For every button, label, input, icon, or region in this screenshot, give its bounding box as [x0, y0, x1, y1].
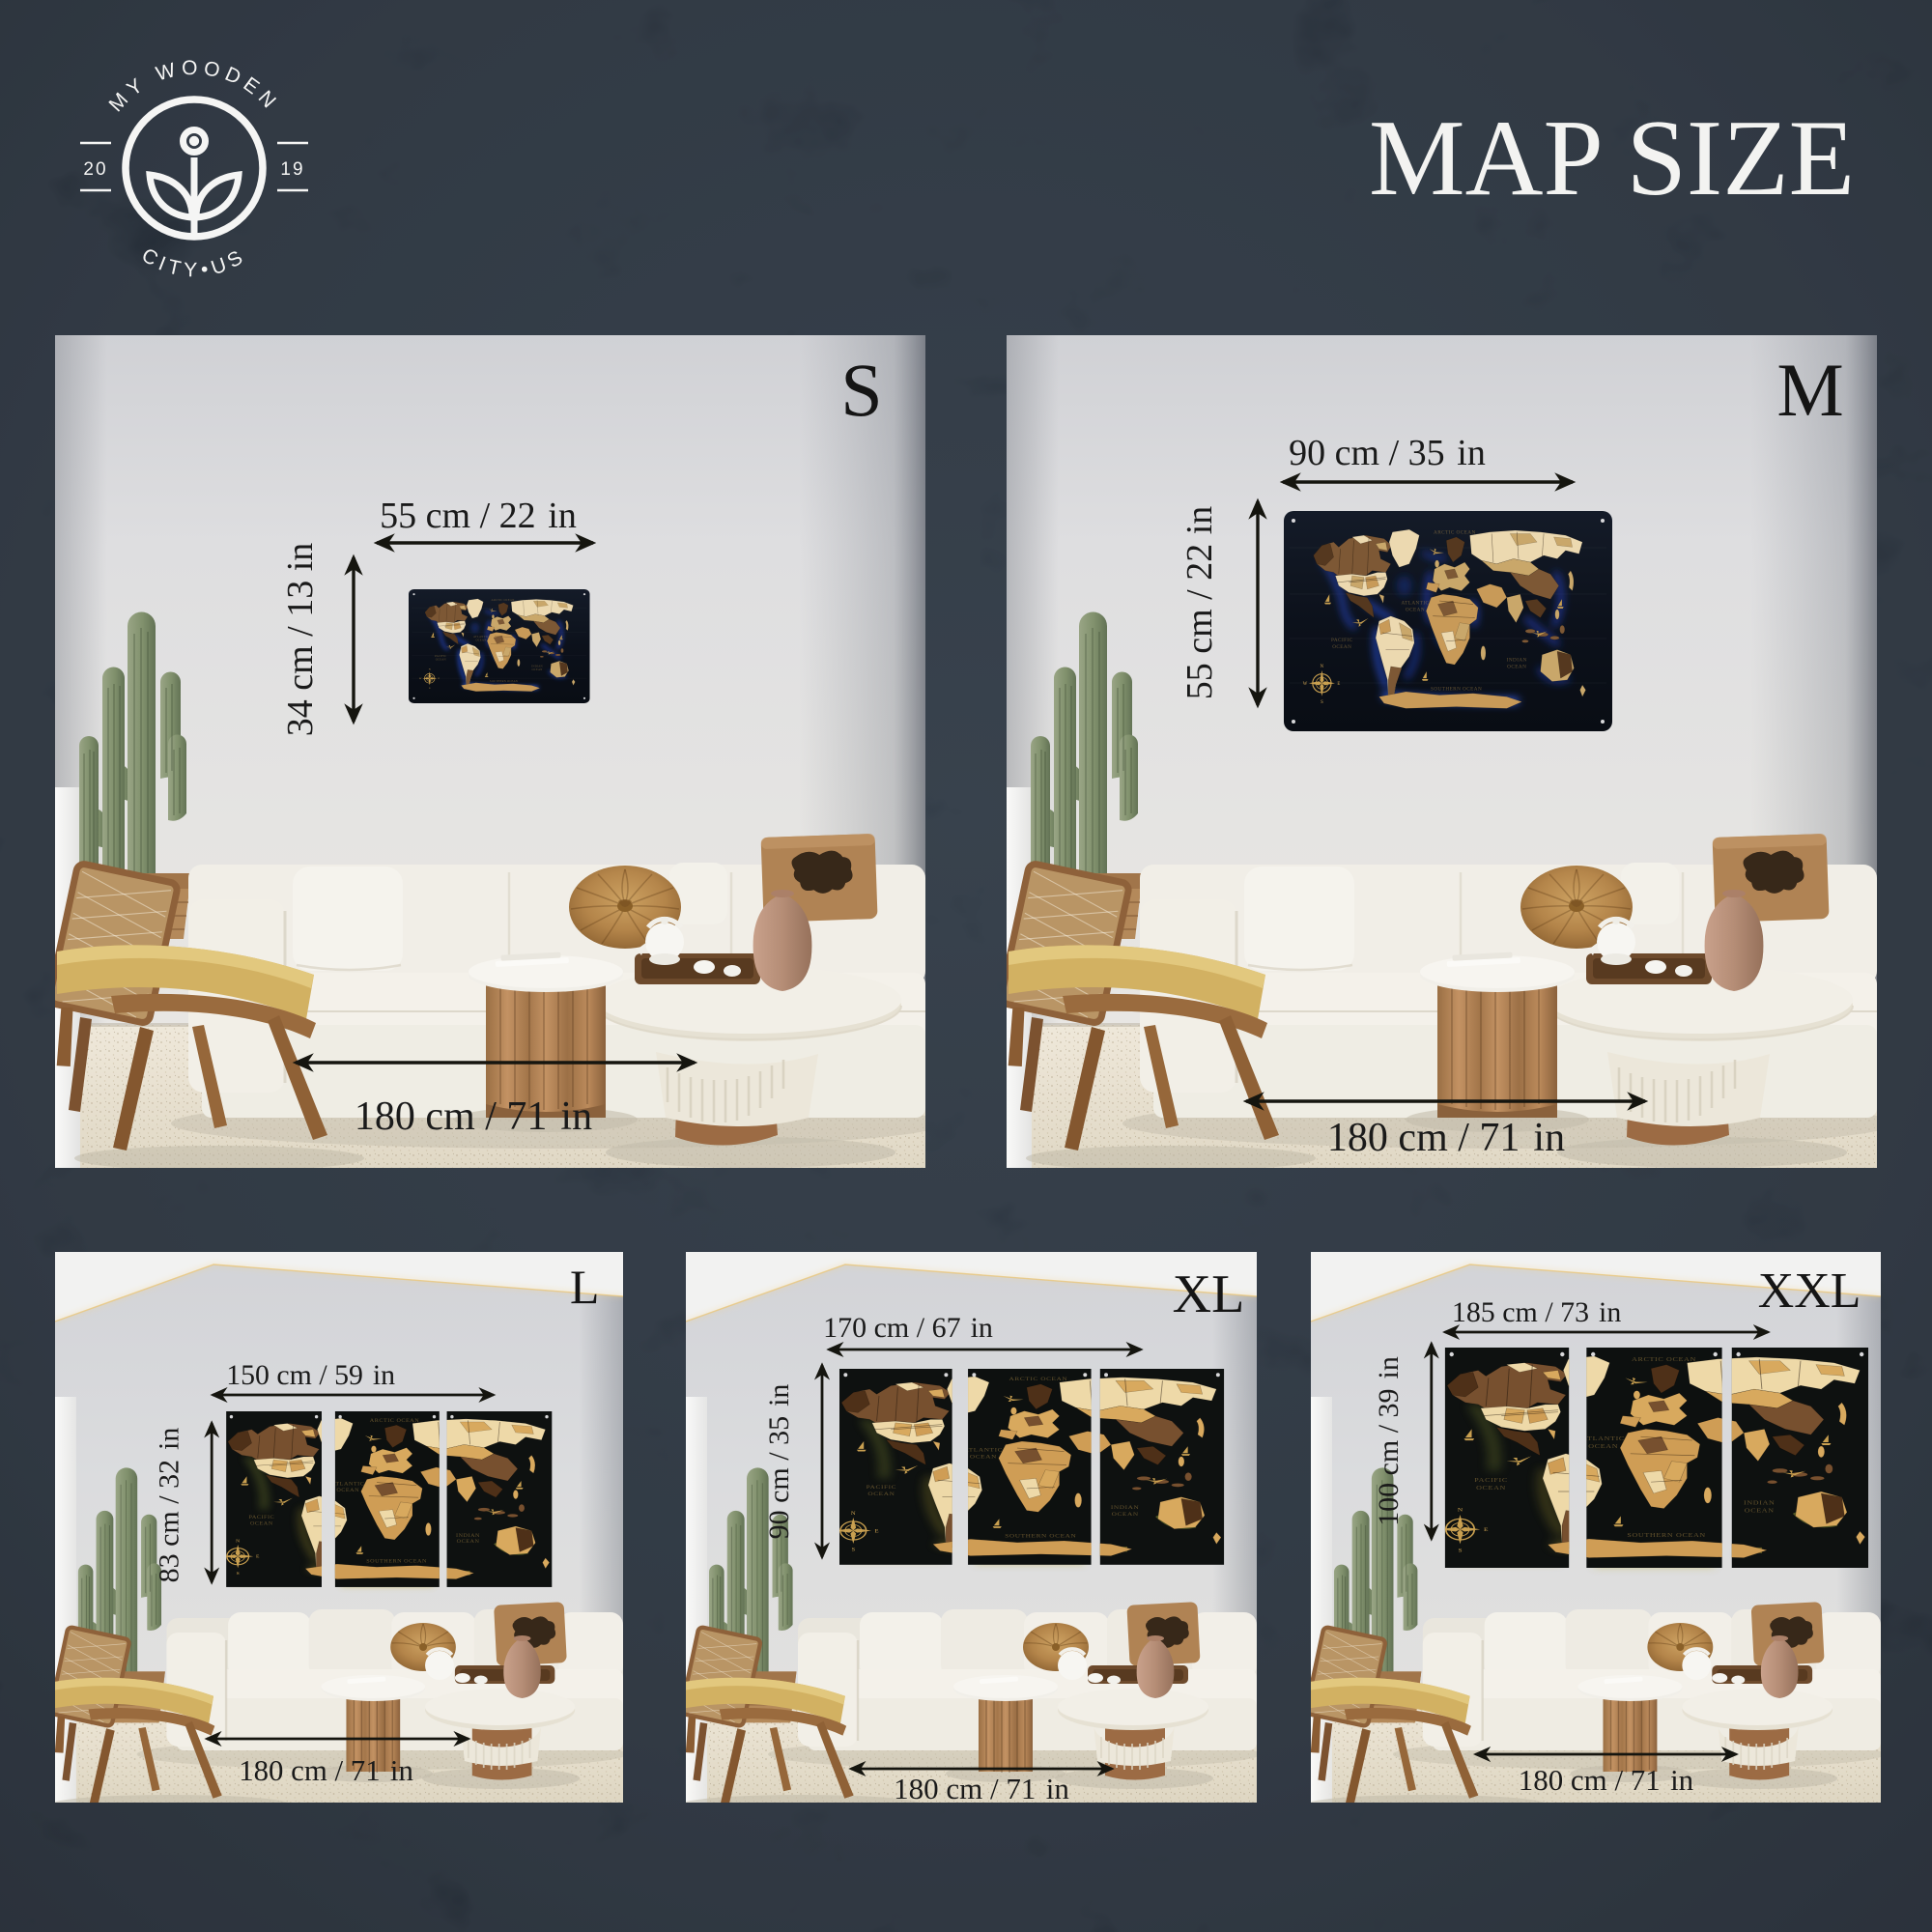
svg-text:ARCTIC OCEAN: ARCTIC OCEAN	[1434, 529, 1476, 535]
svg-text:S: S	[851, 1548, 855, 1552]
svg-text:ATLANTIC: ATLANTIC	[964, 1447, 1003, 1453]
svg-text:90 cm / 35 in: 90 cm / 35 in	[763, 1384, 795, 1540]
svg-text:OCEAN: OCEAN	[1507, 665, 1526, 670]
svg-text:OCEAN: OCEAN	[475, 639, 486, 642]
svg-text:ATLANTIC: ATLANTIC	[473, 636, 489, 639]
svg-text:OCEAN: OCEAN	[1745, 1508, 1775, 1515]
svg-text:OCEAN: OCEAN	[970, 1454, 997, 1460]
svg-text:SOUTHERN OCEAN: SOUTHERN OCEAN	[1005, 1533, 1076, 1539]
svg-text:OCEAN: OCEAN	[867, 1492, 895, 1497]
svg-text:83 cm / 32 in: 83 cm / 32 in	[153, 1428, 185, 1583]
svg-text:PACIFIC: PACIFIC	[435, 655, 446, 658]
svg-text:55 cm / 22 in: 55 cm / 22 in	[1179, 506, 1220, 700]
svg-text:MY WOODEN: MY WOODEN	[105, 57, 284, 116]
svg-text:SOUTHERN OCEAN: SOUTHERN OCEAN	[366, 1559, 427, 1564]
svg-text:W: W	[1303, 682, 1308, 687]
svg-text:150 cm / 59 in: 150 cm / 59 in	[226, 1359, 395, 1391]
svg-text:M: M	[1776, 348, 1843, 432]
svg-text:90 cm / 35 in: 90 cm / 35 in	[1289, 433, 1486, 473]
svg-text:S: S	[1321, 700, 1323, 705]
svg-text:OCEAN: OCEAN	[1332, 644, 1351, 650]
svg-text:34 cm / 13 in: 34 cm / 13 in	[280, 543, 321, 737]
svg-text:180 cm / 71 in: 180 cm / 71 in	[894, 1772, 1069, 1803]
svg-text:100 cm / 39 in: 100 cm / 39 in	[1373, 1356, 1405, 1526]
svg-text:S: S	[840, 348, 882, 432]
svg-text:OCEAN: OCEAN	[436, 658, 446, 661]
svg-text:OCEAN: OCEAN	[1406, 607, 1425, 612]
svg-text:ATLANTIC: ATLANTIC	[1581, 1435, 1624, 1442]
svg-text:S: S	[1458, 1548, 1463, 1554]
svg-text:PACIFIC: PACIFIC	[1474, 1477, 1508, 1484]
svg-text:OCEAN: OCEAN	[1476, 1485, 1506, 1492]
svg-text:SOUTHERN OCEAN: SOUTHERN OCEAN	[1431, 686, 1482, 692]
svg-text:E: E	[1484, 1527, 1489, 1533]
svg-text:180 cm / 71 in: 180 cm / 71 in	[1519, 1763, 1694, 1797]
svg-text:L: L	[570, 1261, 599, 1314]
svg-text:19: 19	[280, 159, 304, 180]
svg-text:CITY•US: CITY•US	[137, 244, 250, 282]
svg-text:OCEAN: OCEAN	[457, 1540, 480, 1545]
svg-text:180 cm / 71 in: 180 cm / 71 in	[239, 1753, 413, 1787]
svg-text:E: E	[256, 1555, 259, 1559]
svg-text:SOUTHERN OCEAN: SOUTHERN OCEAN	[490, 680, 518, 683]
svg-text:S: S	[237, 1572, 240, 1576]
svg-text:XXL: XXL	[1758, 1264, 1861, 1319]
svg-text:ARCTIC OCEAN: ARCTIC OCEAN	[1009, 1377, 1068, 1382]
svg-text:OCEAN: OCEAN	[1112, 1512, 1139, 1518]
svg-text:PACIFIC: PACIFIC	[249, 1516, 275, 1520]
svg-text:SOUTHERN OCEAN: SOUTHERN OCEAN	[1627, 1532, 1706, 1539]
svg-text:ATLANTIC: ATLANTIC	[1401, 601, 1429, 607]
svg-text:INDIAN: INDIAN	[1111, 1505, 1139, 1511]
svg-text:ATLANTIC: ATLANTIC	[331, 1482, 364, 1487]
svg-text:55 cm / 22 in: 55 cm / 22 in	[380, 496, 577, 536]
svg-text:ARCTIC OCEAN: ARCTIC OCEAN	[370, 1419, 419, 1424]
svg-text:INDIAN: INDIAN	[1507, 658, 1527, 664]
svg-text:N: N	[1458, 1507, 1463, 1513]
svg-text:185 cm / 73 in: 185 cm / 73 in	[1452, 1296, 1622, 1328]
svg-text:N: N	[429, 668, 431, 671]
svg-text:PACIFIC: PACIFIC	[1331, 638, 1353, 643]
svg-text:OCEAN: OCEAN	[1588, 1443, 1618, 1450]
svg-text:E: E	[875, 1529, 880, 1534]
svg-text:OCEAN: OCEAN	[250, 1521, 273, 1526]
svg-text:OCEAN: OCEAN	[336, 1489, 359, 1493]
svg-text:N: N	[236, 1540, 241, 1544]
svg-text:INDIAN: INDIAN	[1744, 1500, 1775, 1507]
svg-text:E: E	[1337, 682, 1340, 687]
svg-text:OCEAN: OCEAN	[532, 668, 543, 671]
svg-text:INDIAN: INDIAN	[456, 1533, 480, 1538]
svg-text:ARCTIC OCEAN: ARCTIC OCEAN	[1632, 1356, 1696, 1363]
svg-text:ARCTIC OCEAN: ARCTIC OCEAN	[492, 599, 515, 602]
svg-text:N: N	[1321, 665, 1324, 669]
svg-text:INDIAN: INDIAN	[531, 666, 543, 668]
svg-text:PACIFIC: PACIFIC	[867, 1485, 896, 1491]
svg-text:XL: XL	[1173, 1264, 1245, 1324]
svg-text:180 cm / 71 in: 180 cm / 71 in	[1327, 1116, 1565, 1160]
svg-text:20: 20	[83, 159, 107, 180]
svg-text:170 cm / 67 in: 170 cm / 67 in	[823, 1312, 993, 1344]
svg-text:180 cm / 71 in: 180 cm / 71 in	[355, 1094, 592, 1139]
